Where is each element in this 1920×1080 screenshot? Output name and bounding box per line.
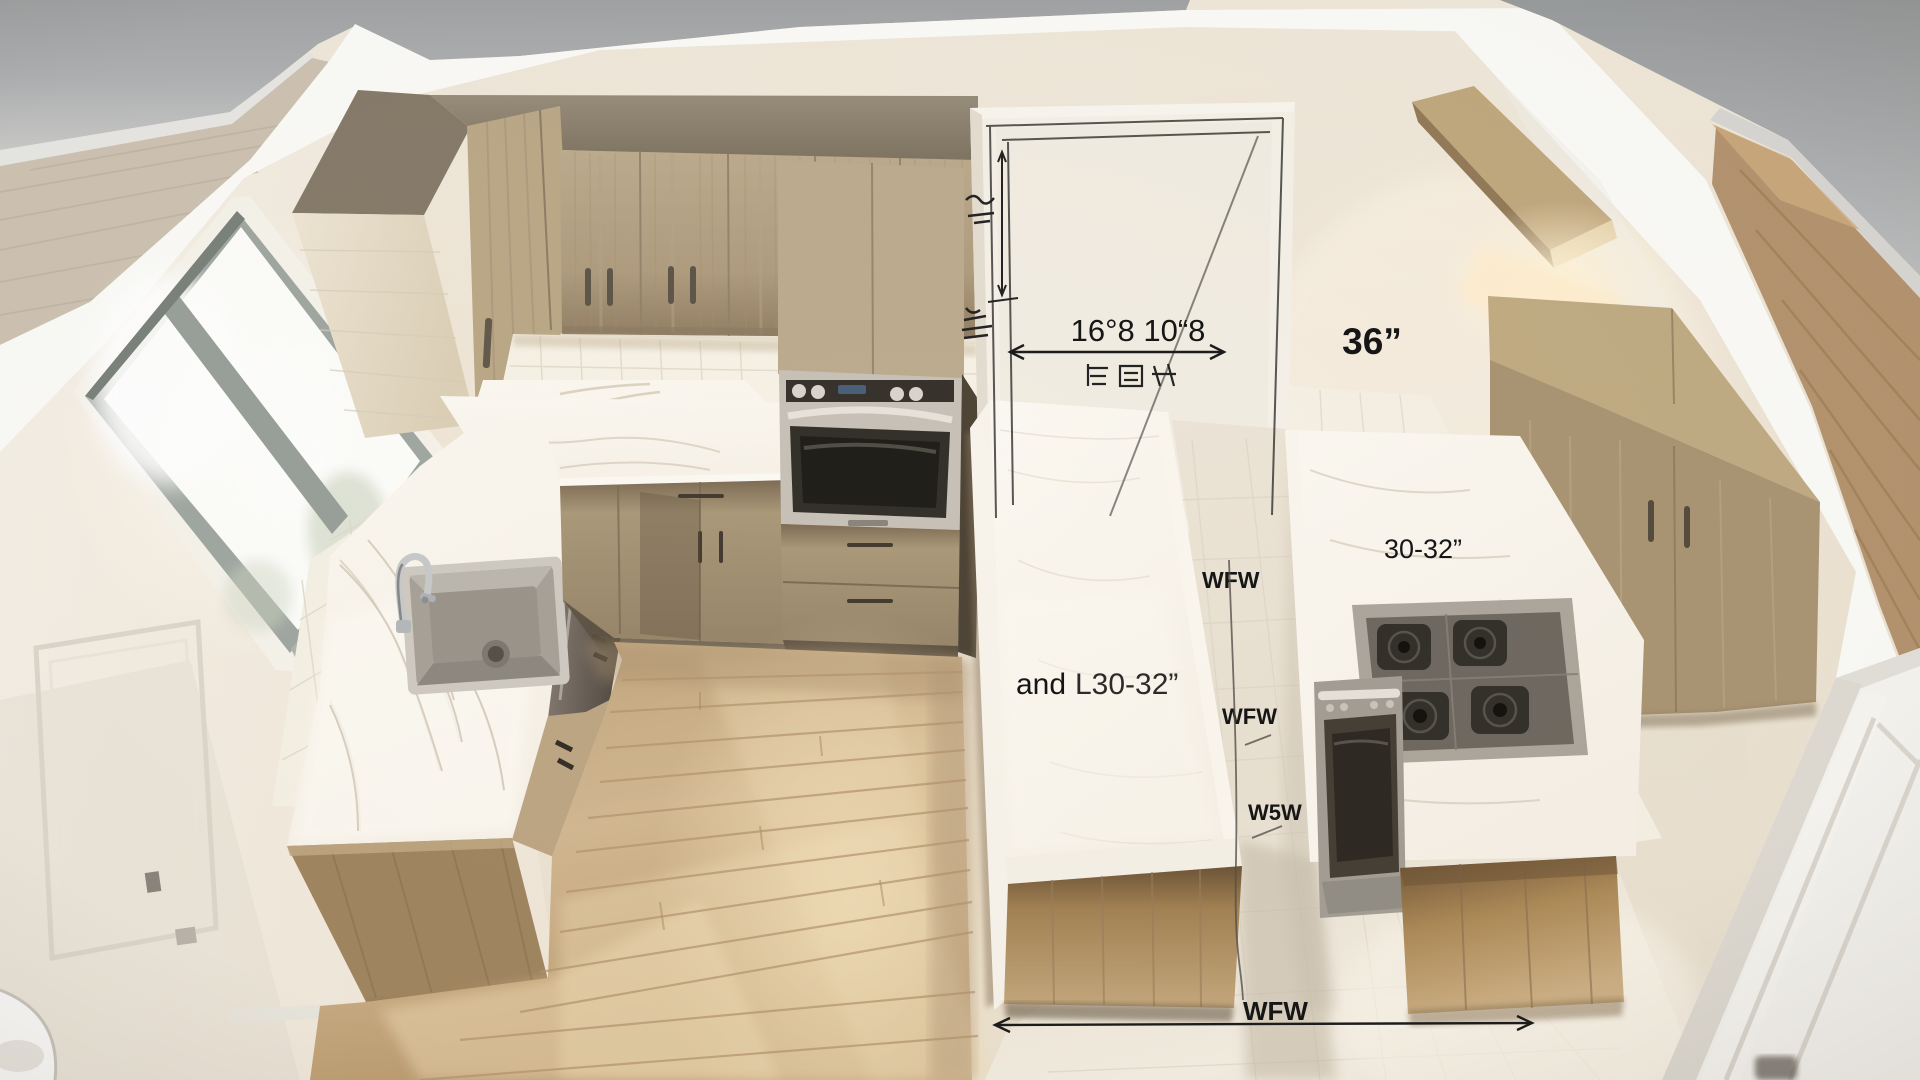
svg-text:W5W: W5W (1248, 800, 1302, 825)
svg-text:36”: 36” (1342, 321, 1402, 362)
svg-text:WFW: WFW (1243, 996, 1308, 1026)
svg-text:L30-32”: L30-32” (1075, 668, 1178, 701)
svg-text:and: and (1016, 668, 1066, 701)
svg-text:WFW: WFW (1222, 704, 1277, 729)
svg-text:16°8 10“8: 16°8 10“8 (1071, 313, 1206, 348)
svg-text:30-32”: 30-32” (1384, 534, 1462, 564)
